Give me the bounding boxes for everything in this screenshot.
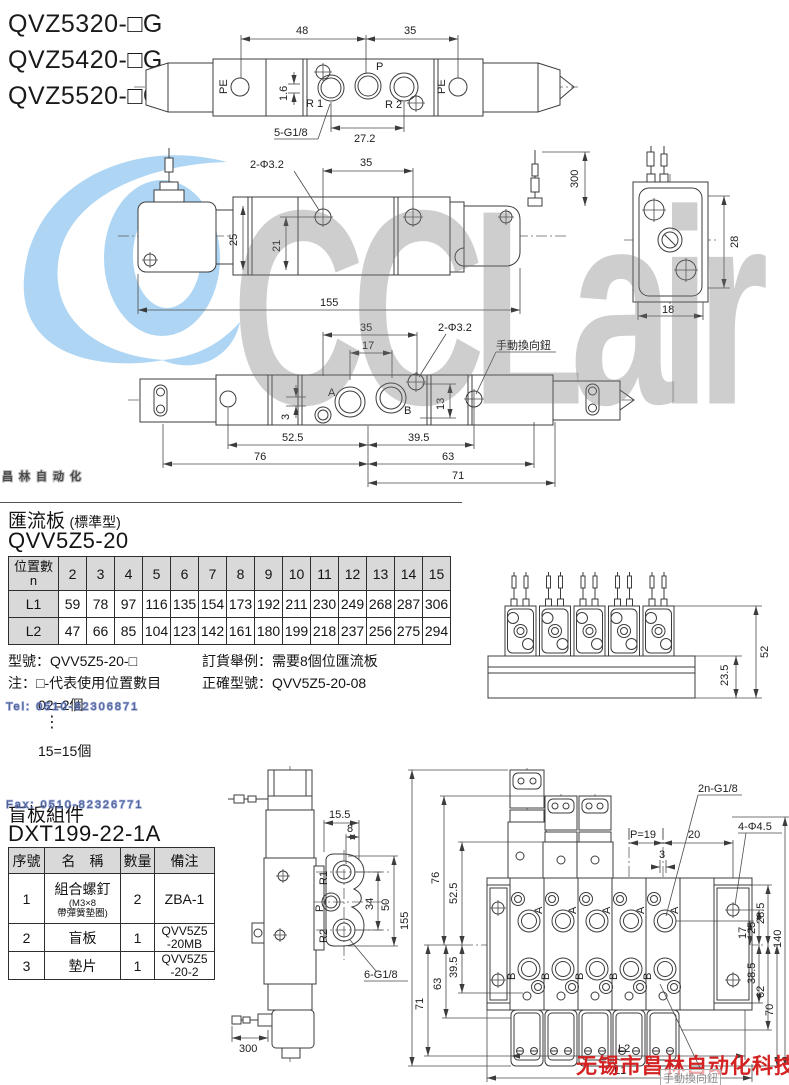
col-header: 15 (423, 557, 451, 591)
cell: 249 (339, 591, 367, 618)
cell: 59 (59, 591, 87, 618)
dim-label: 35 (404, 25, 416, 37)
watermark-fax-text: Fax: 0510-82326771 (6, 799, 144, 811)
dim-label: 76 (430, 872, 442, 884)
dim-label: 300 (239, 1043, 257, 1055)
blank-parts-table: 序號 名 稱 數量 備注 1 組合螺釘(M3×8帶彈簧墊圈) 2 ZBA-1 2… (8, 847, 215, 980)
port-label-a: A (567, 906, 579, 914)
col-header: 5 (143, 557, 171, 591)
cell: 1 (121, 952, 155, 980)
cell: 211 (283, 591, 311, 618)
header-qty: 數量 (121, 848, 155, 874)
port-label-b: B (608, 973, 620, 980)
manual-override-stamp: 手動換向鈕 (660, 1069, 721, 1085)
col-header: 8 (227, 557, 255, 591)
cell: 135 (171, 591, 199, 618)
dim-label: 155 (320, 297, 338, 309)
cell: 2 (9, 924, 45, 952)
cell: ZBA-1 (155, 874, 215, 924)
dim-label: 300 (569, 170, 581, 188)
dim-label: 2-Φ3.2 (250, 159, 284, 171)
port-label-p: P (314, 905, 326, 912)
drawing-front-view: 2-Φ3.2 35 25 21 300 155 (98, 140, 789, 322)
watermark-tel: Tel: 0510-82306871 (0, 638, 789, 733)
watermark-cn-glyphs: 昌林自动化 (2, 469, 87, 483)
watermark-cn-text: 昌林自动化 (0, 350, 789, 515)
cell: QVV5Z5-20MB (155, 924, 215, 952)
dim-label: 71 (414, 998, 426, 1010)
dim-label: 18 (662, 304, 674, 316)
d5-manifold-slab (487, 878, 752, 1010)
port-label-b: B (574, 973, 586, 980)
dim-label: 63 (432, 978, 444, 990)
d2-body (118, 148, 568, 275)
cell: 173 (227, 591, 255, 618)
cell: QVV5Z5-20-2 (155, 952, 215, 980)
cell: 3 (9, 952, 45, 980)
col-header: 11 (311, 557, 339, 591)
port-label-b: B (506, 973, 518, 980)
header-note: 備注 (155, 848, 215, 874)
watermark-fax: Fax: 0510-82326771 (0, 736, 789, 831)
col-header: 12 (339, 557, 367, 591)
d4-port-plate: R1 P R2 (314, 850, 390, 960)
port-label-r1: R1 (318, 871, 330, 885)
dim-label: 2-Φ3.2 (438, 322, 472, 334)
col-header: 7 (199, 557, 227, 591)
cell: 組合螺釘(M3×8帶彈簧墊圈) (45, 874, 121, 924)
dim-label: 35 (360, 157, 372, 169)
dim-label: 35 (360, 322, 372, 334)
cell: 2 (121, 874, 155, 924)
dim-label: 48 (296, 25, 308, 37)
watermark-tel-text: Tel: 0510-82306871 (6, 701, 139, 713)
port-label-a: A (601, 906, 613, 914)
col-header: 9 (255, 557, 283, 591)
table-row: 3 墊片 1 QVV5Z5-20-2 (9, 952, 215, 980)
dim-label: 50 (380, 899, 392, 911)
cell: 97 (115, 591, 143, 618)
cell: 154 (199, 591, 227, 618)
table-header-positions: 位置數n (9, 557, 59, 591)
table-row: 1 組合螺釘(M3×8帶彈簧墊圈) 2 ZBA-1 (9, 874, 215, 924)
col-header: 14 (395, 557, 423, 591)
cell: 230 (311, 591, 339, 618)
port-label-r2: R2 (318, 929, 330, 943)
table-row: 2 盲板 1 QVV5Z5-20MB (9, 924, 215, 952)
dim-label: 28.5 (755, 903, 767, 924)
d2-end-view: 28 18 (624, 146, 741, 320)
dim-label: 28 (729, 236, 741, 248)
port-label-a: A (669, 906, 681, 914)
col-header: 4 (115, 557, 143, 591)
col-header: 2 (59, 557, 87, 591)
d1-body (134, 59, 578, 116)
col-header: 6 (171, 557, 199, 591)
drawing-top-view: 48 35 PE PE P R 1 R 2 1.6 27.2 5-G1/8 (138, 6, 583, 146)
cell: 192 (255, 591, 283, 618)
dim-label: 25 (228, 234, 240, 246)
row-label-l1: L1 (9, 591, 59, 618)
cell: 1 (121, 924, 155, 952)
dim-label: 34 (364, 898, 376, 910)
port-label-pe: PE (436, 79, 448, 94)
port-label-pe: PE (218, 79, 230, 94)
dim-label: 155 (399, 912, 411, 930)
port-label-a: A (533, 906, 545, 914)
cell: 1 (9, 874, 45, 924)
dim-label: 38.5 (746, 963, 758, 984)
dim-label: 140 (772, 930, 784, 948)
dim-label: 3 (659, 849, 665, 861)
col-header: 10 (283, 557, 311, 591)
port-label-b: B (642, 973, 654, 980)
cell: 78 (87, 591, 115, 618)
port-label-r2: R 2 (385, 99, 402, 111)
header-no: 序號 (9, 848, 45, 874)
dim-label: 62 (755, 986, 767, 998)
dim-label: 52.5 (448, 883, 460, 904)
port-label-r1: R 1 (306, 98, 323, 110)
thread-label: 6-G1/8 (364, 969, 398, 981)
cell: 墊片 (45, 952, 121, 980)
header-name: 名 稱 (45, 848, 121, 874)
dim-label: 1.6 (278, 86, 290, 101)
dim-label: 21 (271, 240, 283, 252)
thread-label: 5-G1/8 (274, 127, 308, 139)
port-label-b: B (540, 973, 552, 980)
manifold-dimension-table: 位置數n 2 3 4 5 6 7 8 9 10 11 12 13 14 15 L… (8, 556, 451, 645)
cell: 116 (143, 591, 171, 618)
cell: 306 (423, 591, 451, 618)
dim-label: 39.5 (448, 957, 460, 978)
col-header: 3 (87, 557, 115, 591)
cell: 287 (395, 591, 423, 618)
cell: 268 (367, 591, 395, 618)
datasheet-page: QVZ5320-□G QVZ5420-□G QVZ5520-□G (0, 0, 789, 1085)
port-label-a: A (635, 906, 647, 914)
manifold-model: QVV5Z5-20 (8, 528, 129, 554)
svg-defs (0, 0, 1, 1)
cell: 盲板 (45, 924, 121, 952)
port-label-p: P (376, 61, 383, 73)
col-header: 13 (367, 557, 395, 591)
dim-label: 70 (764, 1004, 776, 1016)
